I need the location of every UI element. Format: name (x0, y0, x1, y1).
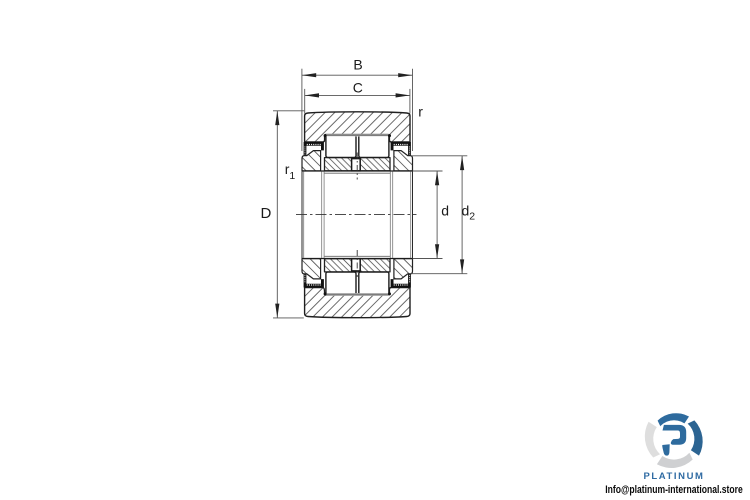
svg-text:B: B (353, 57, 362, 73)
svg-text:C: C (353, 80, 363, 96)
svg-text:r: r (418, 104, 423, 120)
svg-text:d: d (441, 203, 449, 219)
svg-text:PLATINUM: PLATINUM (644, 471, 705, 482)
svg-text:Info@platinum-international.st: Info@platinum-international.store (605, 484, 743, 496)
svg-text:d2: d2 (462, 203, 476, 223)
svg-text:D: D (261, 205, 272, 222)
svg-text:r1: r1 (285, 161, 296, 182)
